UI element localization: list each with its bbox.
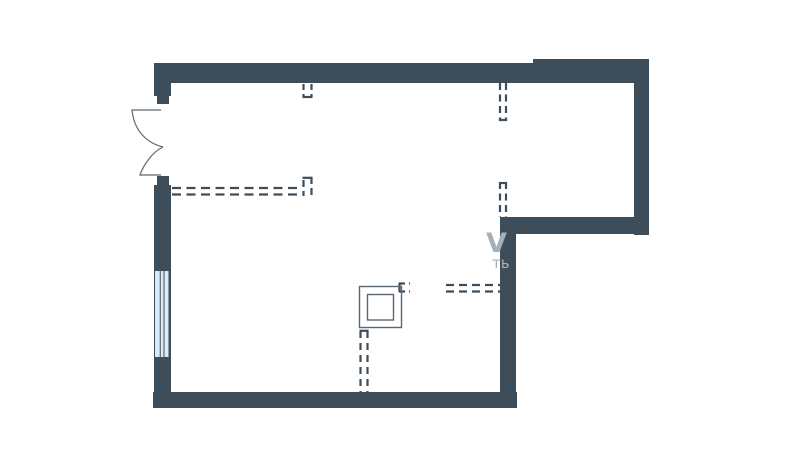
right-wall bbox=[634, 59, 649, 235]
door-leaf-top bbox=[132, 110, 163, 147]
watermark-text: ть bbox=[492, 254, 510, 272]
door-leaf-bottom bbox=[140, 147, 163, 175]
vent-shaft bbox=[360, 287, 402, 328]
bottom-wall bbox=[153, 392, 517, 408]
vent-shaft-inner bbox=[368, 295, 394, 321]
removed-partition-stub-top bbox=[303, 84, 313, 97]
removed-partition-center bbox=[399, 283, 500, 292]
window bbox=[155, 271, 170, 358]
top-wall-right bbox=[533, 59, 649, 83]
removed-partition-vertical-top bbox=[499, 83, 507, 121]
left-wall-upper bbox=[154, 63, 171, 96]
top-wall-left bbox=[154, 63, 535, 83]
removed-partition-below-shaft bbox=[360, 331, 369, 392]
floorplan-canvas: V ть bbox=[0, 0, 800, 471]
removed-partition-left bbox=[172, 177, 313, 196]
removed-partition-vertical-bottom bbox=[499, 182, 507, 217]
double-door-swing bbox=[132, 110, 163, 175]
walls bbox=[153, 59, 649, 408]
door-jamb-top bbox=[157, 96, 169, 104]
watermark: V ть bbox=[486, 228, 510, 272]
window-glazing bbox=[155, 271, 170, 358]
wing-divider-wall bbox=[500, 217, 649, 234]
vent-shaft-outer bbox=[360, 287, 402, 328]
door-jamb-bottom bbox=[157, 176, 169, 186]
floorplan-page: V ть bbox=[0, 0, 800, 471]
